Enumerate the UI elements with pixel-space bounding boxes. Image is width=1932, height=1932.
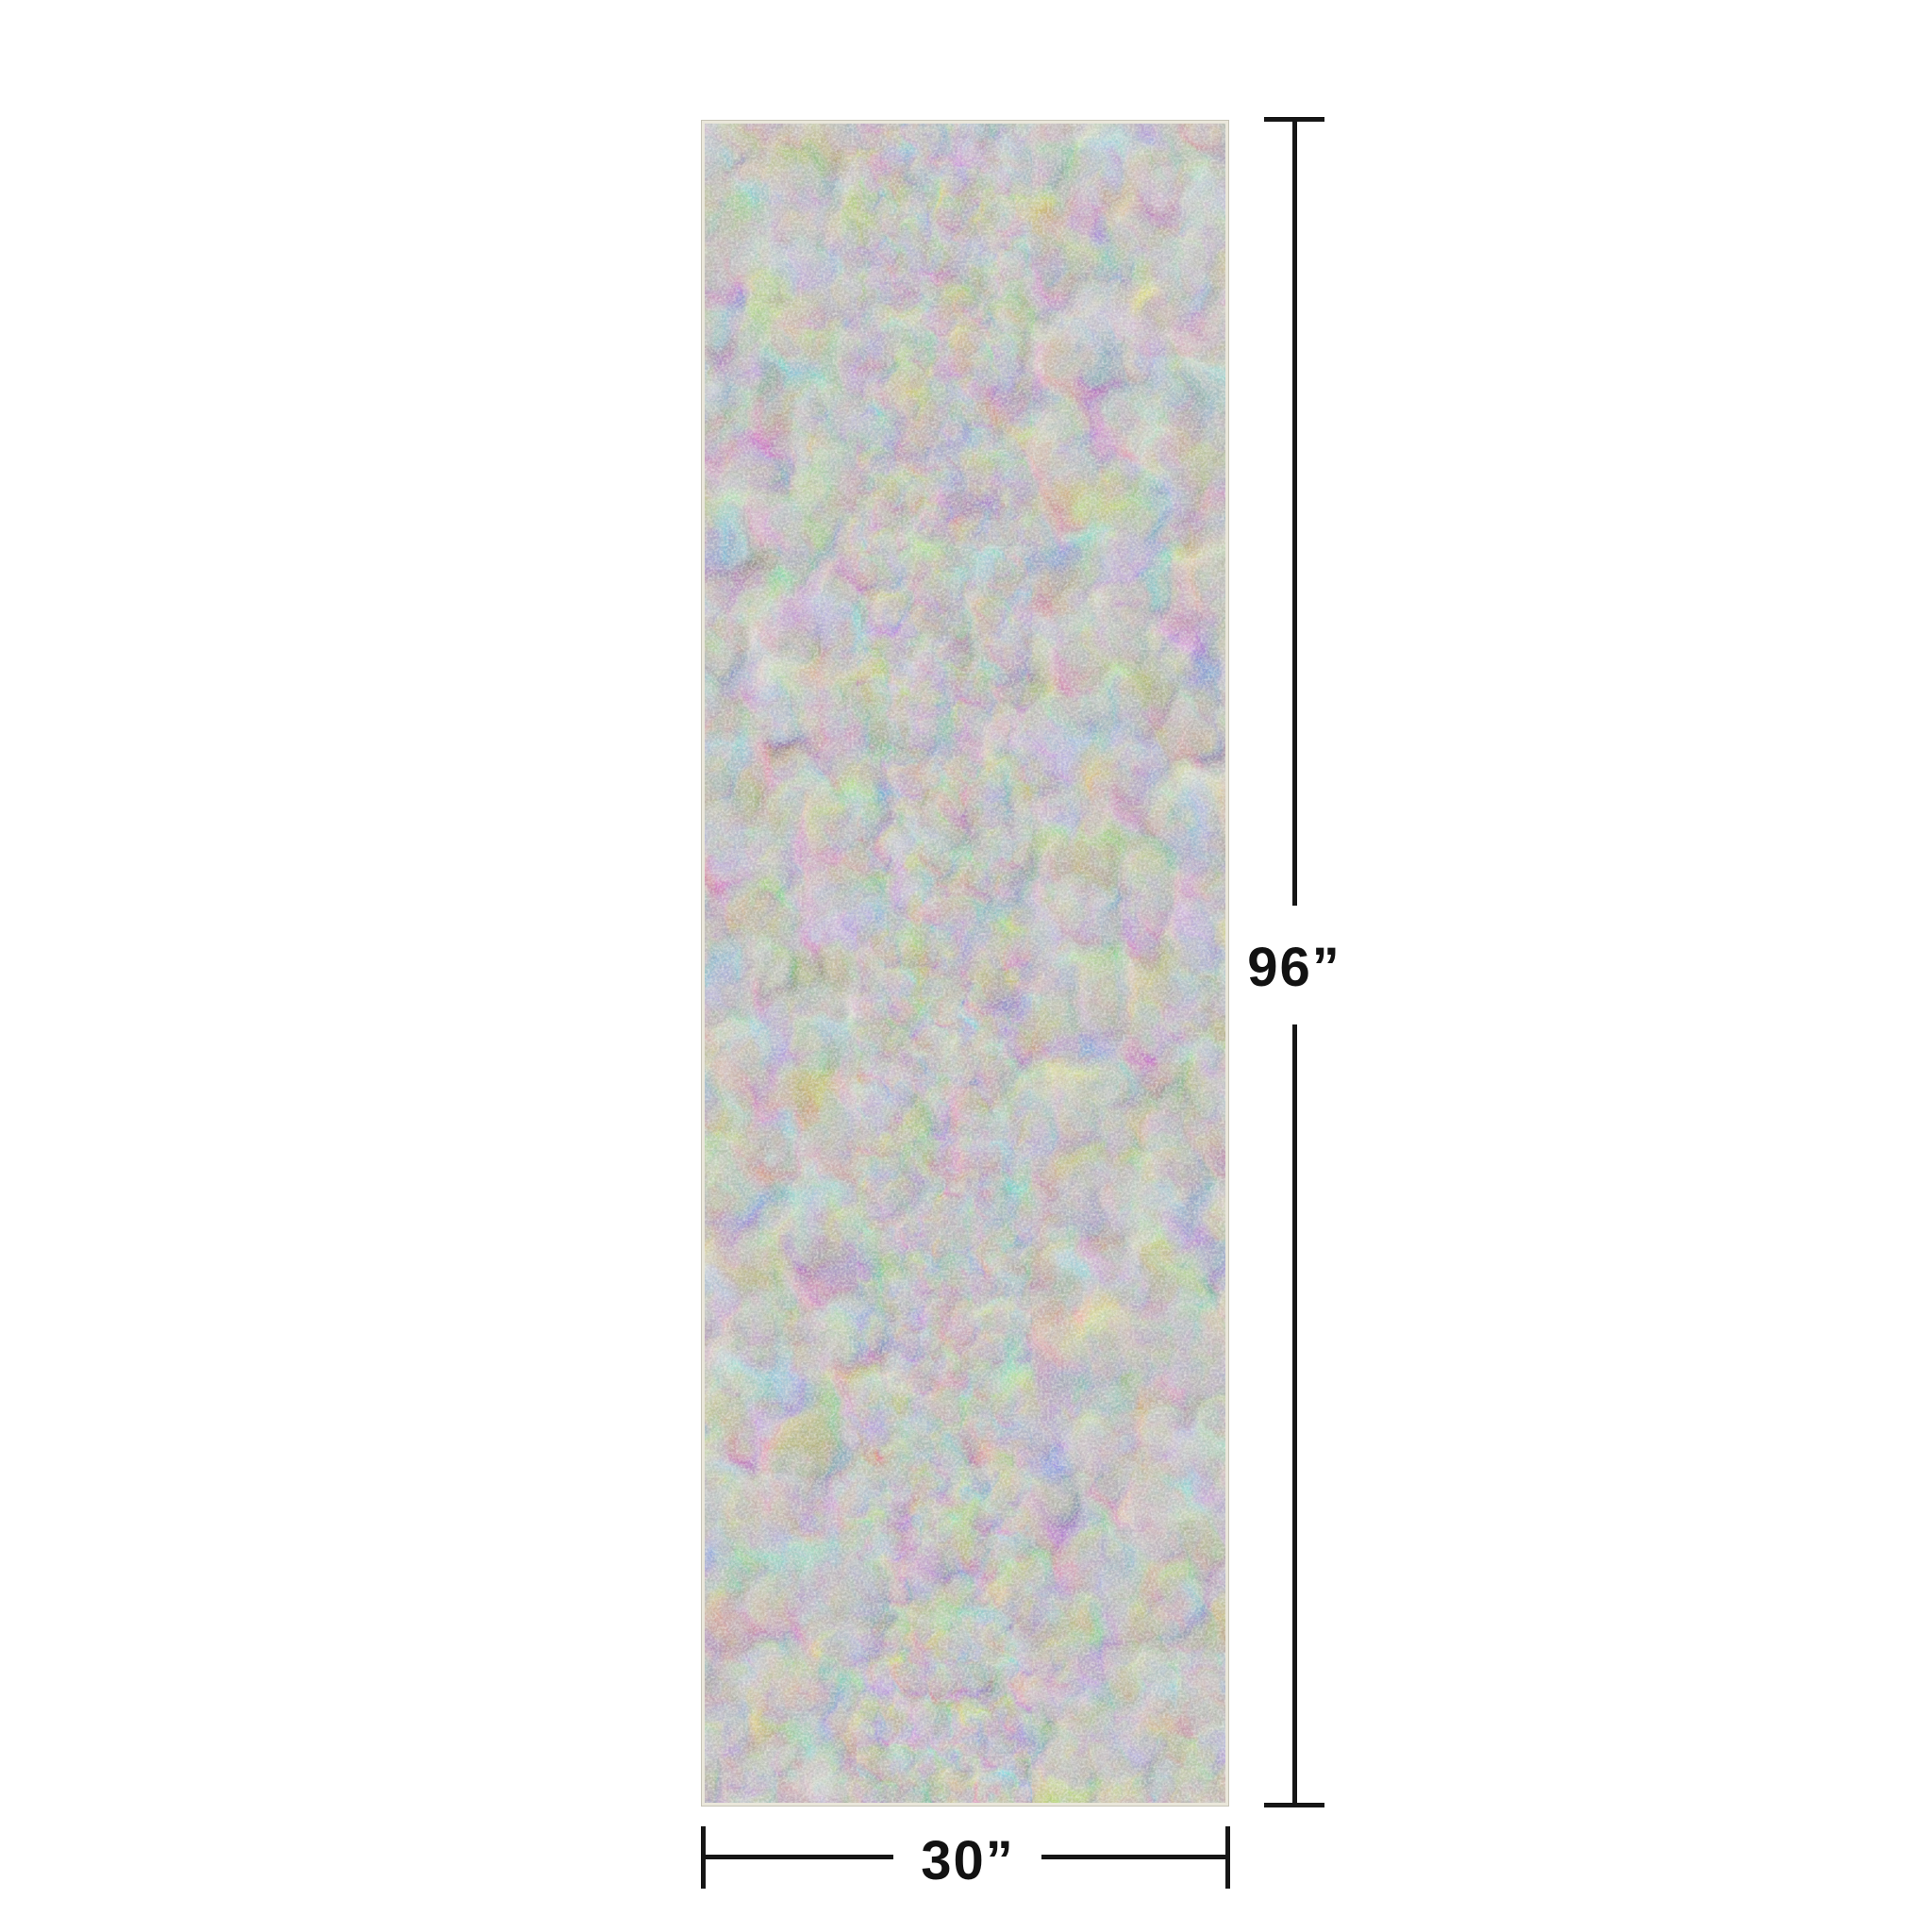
- rug-pattern-svg: [701, 120, 1229, 1807]
- width-dimension-right-segment: [1041, 1855, 1230, 1859]
- height-dimension-lower-line: [1292, 1024, 1297, 1807]
- width-dimension-right-cap: [1225, 1826, 1230, 1889]
- height-dimension-label: 96”: [1181, 936, 1407, 1000]
- height-dimension-bottom-cap: [1264, 1803, 1324, 1807]
- height-dimension-upper-line: [1292, 117, 1297, 906]
- rug-image: [701, 120, 1229, 1807]
- width-dimension-label: 30”: [855, 1829, 1081, 1893]
- diagram-canvas: 96” 30”: [0, 0, 1932, 1932]
